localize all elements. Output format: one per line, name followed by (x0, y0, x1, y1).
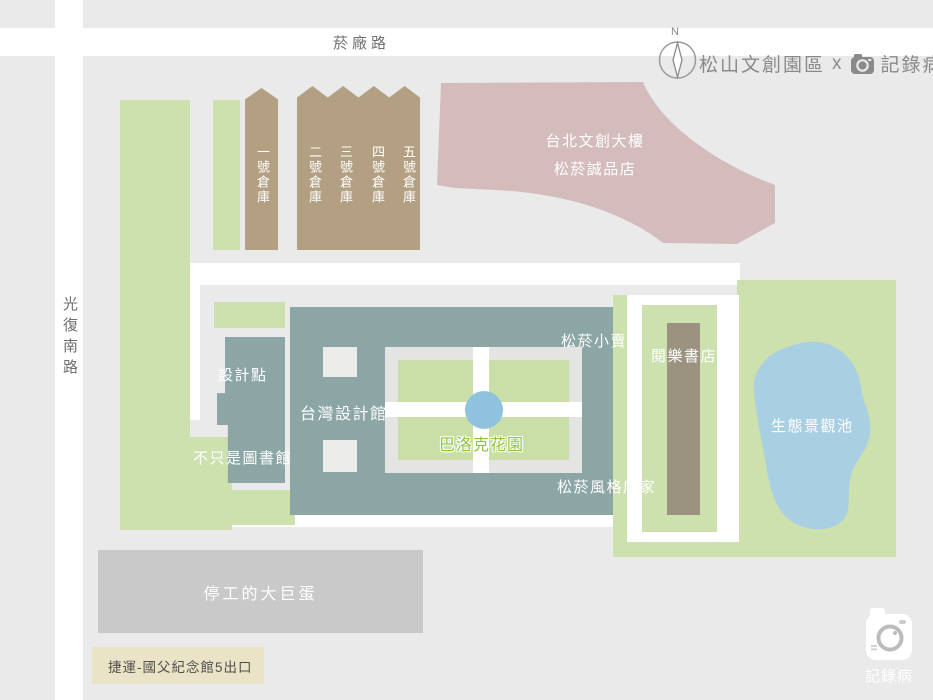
museum-courtyard-1 (323, 347, 357, 377)
mrt-exit-box: 捷運-國父紀念館5出口 (92, 647, 264, 684)
map-title: 松山文創園區 x 記錄病 (699, 50, 933, 77)
style-stores-label: 松菸風格店家 (557, 476, 656, 497)
left-road-label: 光復南路 (59, 296, 80, 380)
warehouse-5-label: 五號倉庫 (400, 145, 416, 205)
top-road-label: 菸廠路 (333, 32, 390, 53)
garden-fountain (465, 391, 503, 429)
green-left-strip (120, 100, 190, 437)
title-separator: x (832, 53, 844, 75)
green-warehouse-strip (213, 100, 240, 250)
green-mid-block (214, 302, 285, 328)
camera-icon (851, 54, 874, 74)
warehouse-4-label: 四號倉庫 (369, 145, 385, 205)
green-library-bottom (203, 490, 295, 525)
compass-icon (655, 24, 701, 82)
logo-camera-icon (866, 614, 912, 660)
eco-pond-shape (745, 335, 877, 537)
logo-brand-label: 記錄病 (860, 665, 918, 686)
warehouse-1-label: 一號倉庫 (254, 145, 270, 205)
yueyue-bookstore-label: 閱樂書店 (651, 345, 717, 366)
not-just-library-label: 不只是圖書館 (193, 447, 292, 468)
songyan-shop-label: 松菸小賣所 (561, 330, 644, 351)
baroque-garden-label: 巴洛克花園 (439, 431, 524, 455)
eco-pond-label: 生態景觀池 (771, 415, 854, 436)
title-park-name: 松山文創園區 (699, 50, 825, 77)
title-brand-name: 記錄病 (881, 50, 933, 77)
dome-label: 停工的大巨蛋 (203, 580, 317, 604)
warehouse-2-label: 二號倉庫 (306, 145, 322, 205)
road-inner-horizontal (190, 263, 740, 285)
taiwan-design-museum-label: 台灣設計館 (300, 400, 388, 424)
taipei-new-horizon-label-1: 台北文創大樓 (535, 130, 655, 151)
taipei-dome-building: 停工的大巨蛋 (98, 550, 423, 633)
park-map: 停工的大巨蛋 捷運-國父紀念館5出口 菸廠路 光復南路 一號倉庫 二號倉庫 三號… (0, 0, 933, 700)
mrt-exit-label: 捷運-國父紀念館5出口 (108, 656, 253, 676)
green-bottom-band (613, 542, 740, 557)
museum-courtyard-2 (323, 440, 357, 472)
design-point-label: 設計點 (218, 364, 268, 385)
taipei-new-horizon-label-2: 松菸誠品店 (535, 158, 655, 179)
warehouse-3-label: 三號倉庫 (337, 145, 353, 205)
